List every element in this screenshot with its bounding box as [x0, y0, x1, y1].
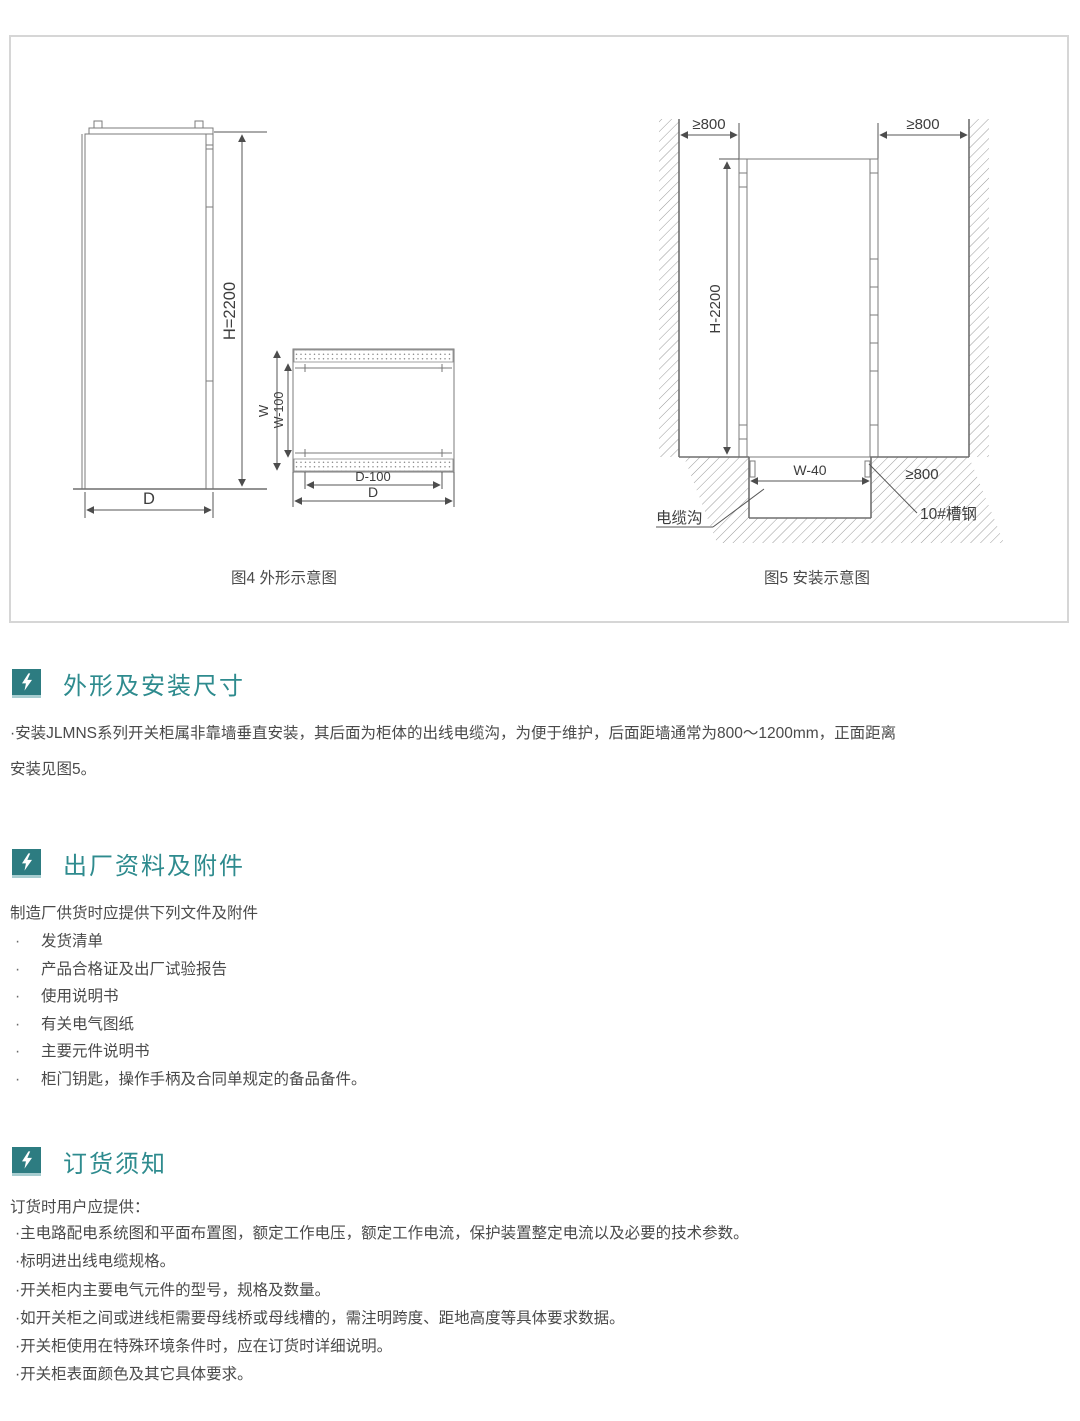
section-documents-heading: 出厂资料及附件 [12, 846, 245, 881]
paragraph-line: ·安装JLMNS系列开关柜属非靠墙垂直安装，其后面为柜体的出线电缆沟，为便于维护… [10, 716, 896, 752]
list-item-text: 开关柜表面颜色及其它具体要求。 [20, 1366, 253, 1383]
list-item-text: 主电路配电系统图和平面布置图，额定工作电压，额定工作电流，保护装置整定电流以及必… [20, 1225, 749, 1242]
bullet: · [15, 956, 41, 984]
bullet: · [15, 1066, 41, 1094]
list-item-text: 使用说明书 [41, 988, 119, 1005]
fig5-caption: 图5 安装示意图 [764, 568, 870, 587]
list-item-text: 有关电气图纸 [41, 1016, 134, 1033]
fig5-dim-left-clearance: ≥800 [692, 116, 725, 133]
fig4-dim-depth-top: D [368, 484, 378, 500]
fig5-label-cable-trench: 电缆沟 [656, 509, 703, 527]
list-item-text: 发货清单 [41, 933, 103, 950]
list-item: ·开关柜内主要电气元件的型号，规格及数量。 [10, 1277, 749, 1305]
list-item: ·柜门钥匙，操作手柄及合同单规定的备品备件。 [10, 1066, 367, 1094]
lightning-icon [12, 849, 41, 878]
fig5-dim-right-clearance: ≥800 [906, 116, 939, 133]
list-item: ·使用说明书 [10, 983, 367, 1011]
bullet: · [15, 1011, 41, 1039]
catalog-page: H=2200 D [0, 0, 1080, 1421]
documents-list: ·发货清单 ·产品合格证及出厂试验报告 ·使用说明书 ·有关电气图纸 ·主要元件… [10, 928, 367, 1094]
ordering-list: ·主电路配电系统图和平面布置图，额定工作电压，额定工作电流，保护装置整定电流以及… [10, 1220, 749, 1390]
fig4-top-view: W W-100 D-100 D [256, 349, 454, 507]
fig4-caption: 图4 外形示意图 [231, 568, 337, 587]
fig5-dim-rear-clearance: ≥800 [905, 466, 938, 483]
fig4-dim-depth-front: D [143, 490, 155, 508]
fig5-label-channel-steel: 10#槽钢 [920, 505, 977, 523]
list-item-text: 如开关柜之间或进线柜需要母线桥或母线槽的，需注明跨度、距地高度等具体要求数据。 [20, 1310, 625, 1327]
list-item: ·开关柜使用在特殊环境条件时，应在订货时详细说明。 [10, 1333, 749, 1361]
fig4-front-view: H=2200 D [73, 121, 267, 518]
paragraph-line: 安装见图5。 [10, 752, 896, 788]
list-item-text: 开关柜使用在特殊环境条件时，应在订货时详细说明。 [20, 1338, 392, 1355]
section-title: 出厂资料及附件 [63, 846, 245, 881]
installation-paragraph: ·安装JLMNS系列开关柜属非靠墙垂直安装，其后面为柜体的出线电缆沟，为便于维护… [10, 716, 896, 788]
list-item: ·如开关柜之间或进线柜需要母线桥或母线槽的，需注明跨度、距地高度等具体要求数据。 [10, 1305, 749, 1333]
fig5-installation-view: ≥800 ≥800 [656, 116, 1004, 543]
list-item: ·产品合格证及出厂试验报告 [10, 956, 367, 984]
bullet: · [15, 928, 41, 956]
list-item: ·发货清单 [10, 928, 367, 956]
list-item-text: 产品合格证及出厂试验报告 [41, 961, 227, 978]
fig4-dim-width-100: W-100 [272, 392, 286, 429]
list-item-text: 开关柜内主要电气元件的型号，规格及数量。 [20, 1282, 330, 1299]
fig4-dim-height: H=2200 [221, 282, 239, 340]
section-dimensions-heading: 外形及安装尺寸 [12, 666, 245, 701]
figure-panel: H=2200 D [9, 35, 1069, 623]
list-item: ·主要元件说明书 [10, 1038, 367, 1066]
list-item-text: 柜门钥匙，操作手柄及合同单规定的备品备件。 [41, 1071, 367, 1088]
list-item-text: 标明进出线电缆规格。 [20, 1253, 175, 1270]
list-item: ·有关电气图纸 [10, 1011, 367, 1039]
section-ordering-heading: 订货须知 [12, 1144, 167, 1179]
section-title: 外形及安装尺寸 [63, 666, 245, 701]
technical-drawings: H=2200 D [11, 37, 1067, 621]
bullet: · [15, 983, 41, 1011]
lightning-icon [12, 669, 41, 698]
fig5-dim-height: H-2200 [707, 284, 724, 333]
list-item: ·开关柜表面颜色及其它具体要求。 [10, 1361, 749, 1389]
fig4-dim-depth-100: D-100 [355, 469, 390, 484]
fig5-dim-trench-width: W-40 [793, 462, 826, 478]
ordering-intro: 订货时用户应提供： [10, 1195, 150, 1217]
list-item: ·主电路配电系统图和平面布置图，额定工作电压，额定工作电流，保护装置整定电流以及… [10, 1220, 749, 1248]
bullet: · [15, 1038, 41, 1066]
section-title: 订货须知 [63, 1144, 167, 1179]
fig4-dim-width: W [256, 404, 271, 417]
lightning-icon [12, 1147, 41, 1176]
list-item: ·标明进出线电缆规格。 [10, 1248, 749, 1276]
list-item-text: 主要元件说明书 [41, 1043, 150, 1060]
documents-intro: 制造厂供货时应提供下列文件及附件 [10, 901, 258, 923]
